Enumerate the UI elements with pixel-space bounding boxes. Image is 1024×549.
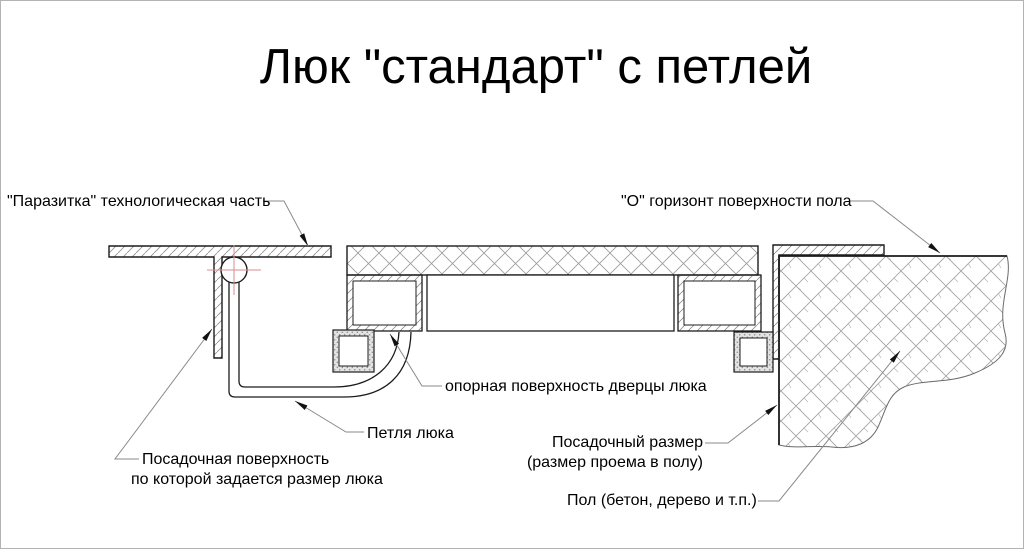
label-horizon: "О" горизонт поверхности пола: [621, 193, 852, 210]
label-seating-size-line1: Посадочный размер: [552, 434, 703, 451]
door-left-frame: [347, 275, 422, 331]
label-seating-size-line2: (размер проема в полу): [527, 454, 703, 471]
door-right-frame: [678, 275, 761, 331]
leader-hinge: [295, 401, 364, 432]
left-seal-square: [333, 330, 374, 372]
right-seal-square: [734, 332, 773, 372]
hatch-section-drawing: Люк "стандарт" с петлей: [1, 1, 1024, 549]
parasitka-angle-profile: [109, 246, 331, 358]
label-parasitka: "Паразитка" технологическая часть: [7, 193, 270, 210]
drawing-canvas: Люк "стандарт" с петлей: [0, 0, 1024, 549]
label-seating-surface-line2: по которой задается размер люка: [131, 471, 383, 488]
diagram-title: Люк "стандарт" с петлей: [260, 40, 812, 94]
door-slab: [347, 246, 758, 275]
leader-seating-size: [705, 405, 777, 443]
door-span: [427, 275, 674, 331]
label-hinge: Петля люка: [367, 425, 454, 442]
label-seating-surface-line1: Посадочная поверхность: [142, 451, 329, 468]
leader-seating-surface: [115, 329, 212, 459]
floor-block: [779, 256, 1008, 448]
label-floor: Пол (бетон, дерево и т.п.): [567, 492, 757, 509]
label-support-surface: опорная поверхность дверцы люка: [445, 378, 707, 395]
